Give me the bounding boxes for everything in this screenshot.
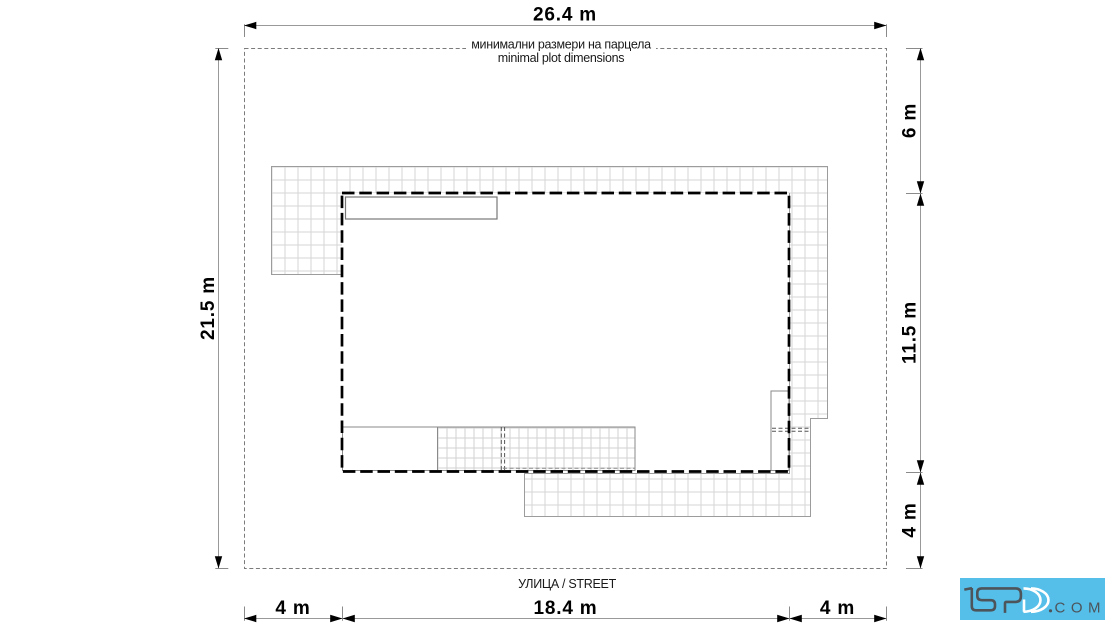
svg-text:УЛИЦА / STREET: УЛИЦА / STREET [518,577,616,591]
svg-text:минимални размери на парцела: минимални размери на парцела [471,38,651,52]
svg-text:21.5 m: 21.5 m [198,276,219,340]
svg-text:26.4 m: 26.4 m [533,5,597,26]
svg-text:minimal plot dimensions: minimal plot dimensions [498,51,625,65]
svg-text:4 m: 4 m [275,598,310,619]
svg-text:COM: COM [1055,600,1107,617]
svg-text:6 m: 6 m [900,103,921,138]
svg-text:11.5 m: 11.5 m [900,301,921,364]
svg-text:4 m: 4 m [900,502,921,537]
svg-text:4 m: 4 m [820,598,855,619]
svg-text:18.4 m: 18.4 m [534,598,598,619]
